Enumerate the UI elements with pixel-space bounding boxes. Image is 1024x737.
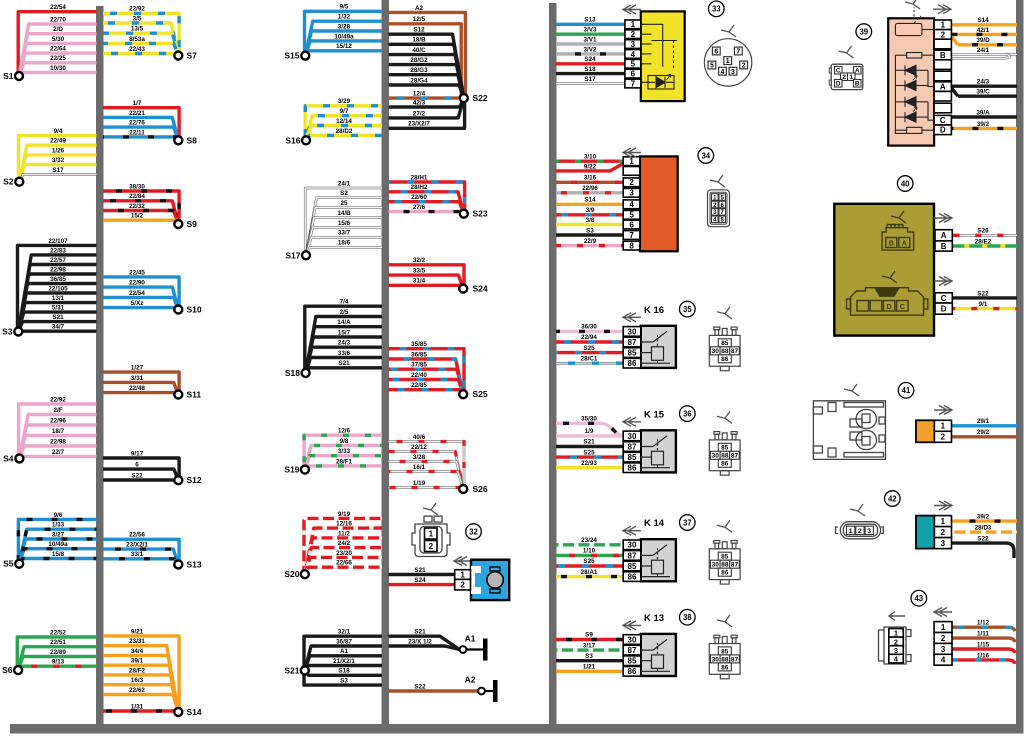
- svg-text:12/14: 12/14: [336, 118, 352, 125]
- svg-text:22/90: 22/90: [129, 280, 145, 287]
- svg-text:S5: S5: [3, 559, 14, 569]
- svg-text:39: 39: [859, 27, 868, 36]
- svg-text:12/16: 12/16: [336, 521, 352, 528]
- svg-text:9/5: 9/5: [340, 4, 349, 11]
- svg-text:18/B: 18/B: [412, 37, 426, 44]
- svg-text:30: 30: [628, 432, 637, 441]
- svg-text:3/17: 3/17: [583, 642, 596, 649]
- svg-text:1: 1: [631, 20, 636, 29]
- svg-text:9/13: 9/13: [52, 659, 65, 666]
- svg-text:31/4: 31/4: [413, 278, 426, 285]
- svg-text:A1: A1: [340, 648, 349, 655]
- svg-text:9/7: 9/7: [340, 108, 349, 115]
- svg-text:3/16: 3/16: [584, 175, 597, 182]
- svg-text:1: 1: [941, 623, 946, 632]
- svg-text:22/51: 22/51: [50, 639, 66, 646]
- svg-text:3: 3: [631, 40, 636, 49]
- svg-text:S11: S11: [187, 390, 202, 400]
- svg-text:30: 30: [712, 656, 720, 663]
- svg-text:S17: S17: [52, 167, 64, 174]
- svg-text:13/5: 13/5: [131, 26, 144, 33]
- svg-text:28/C1: 28/C1: [581, 355, 598, 362]
- svg-text:S10: S10: [187, 305, 202, 315]
- svg-text:88: 88: [721, 656, 729, 663]
- svg-text:3/33: 3/33: [338, 448, 351, 455]
- svg-text:29/1: 29/1: [977, 418, 990, 425]
- svg-text:3: 3: [867, 528, 871, 535]
- svg-text:C: C: [940, 116, 946, 125]
- svg-text:86: 86: [721, 664, 729, 671]
- svg-text:24/3: 24/3: [977, 79, 990, 86]
- svg-text:S16: S16: [285, 135, 300, 145]
- svg-text:2: 2: [429, 542, 434, 551]
- svg-text:34: 34: [701, 151, 710, 160]
- svg-text:1: 1: [726, 58, 730, 65]
- svg-text:7: 7: [736, 49, 740, 56]
- svg-text:S18: S18: [285, 368, 300, 378]
- svg-text:24/1: 24/1: [977, 47, 990, 54]
- svg-text:32/2: 32/2: [413, 257, 426, 264]
- svg-text:36/87: 36/87: [336, 638, 352, 645]
- svg-text:S21: S21: [414, 629, 426, 636]
- svg-text:10/49a: 10/49a: [334, 33, 354, 40]
- svg-text:S13: S13: [187, 559, 202, 569]
- svg-text:B: B: [889, 241, 894, 248]
- svg-text:1/33: 1/33: [52, 522, 65, 529]
- svg-text:28/E2: 28/E2: [975, 238, 992, 245]
- svg-text:35: 35: [683, 305, 692, 314]
- svg-text:32: 32: [469, 527, 478, 536]
- svg-text:1/16: 1/16: [977, 652, 990, 659]
- svg-text:S13: S13: [584, 17, 596, 24]
- svg-text:39/D: 39/D: [976, 37, 990, 44]
- svg-text:30: 30: [628, 327, 637, 336]
- svg-text:5: 5: [631, 60, 636, 69]
- svg-text:9/8: 9/8: [340, 438, 349, 445]
- svg-text:10/30: 10/30: [50, 65, 66, 72]
- svg-text:88: 88: [721, 453, 729, 460]
- svg-text:3: 3: [941, 645, 946, 654]
- svg-text:36/30: 36/30: [581, 324, 597, 331]
- svg-text:4: 4: [894, 657, 898, 664]
- svg-text:1/12: 1/12: [977, 620, 990, 627]
- svg-text:28/A1: 28/A1: [581, 569, 598, 576]
- svg-text:85: 85: [628, 453, 637, 462]
- svg-text:S21: S21: [52, 314, 64, 321]
- svg-text:88: 88: [721, 562, 729, 569]
- svg-text:23/24: 23/24: [581, 537, 597, 544]
- svg-text:28/D3: 28/D3: [975, 525, 992, 532]
- svg-text:25: 25: [340, 200, 348, 207]
- svg-text:30: 30: [628, 541, 637, 550]
- svg-text:5/31: 5/31: [52, 305, 65, 312]
- svg-text:5: 5: [710, 63, 714, 70]
- svg-text:5: 5: [629, 211, 634, 220]
- svg-text:22/105: 22/105: [48, 285, 68, 292]
- svg-text:22/85: 22/85: [411, 382, 427, 389]
- svg-text:2: 2: [842, 74, 846, 81]
- svg-text:22/9: 22/9: [584, 238, 597, 245]
- svg-text:S3: S3: [340, 678, 348, 685]
- svg-text:1/31: 1/31: [131, 703, 144, 710]
- svg-text:3/5: 3/5: [133, 15, 142, 22]
- svg-text:39/A: 39/A: [976, 109, 990, 116]
- svg-text:9/1: 9/1: [979, 301, 988, 308]
- svg-text:33/1: 33/1: [131, 551, 144, 558]
- svg-text:22/89: 22/89: [50, 649, 66, 656]
- svg-text:87: 87: [628, 338, 637, 347]
- svg-text:30: 30: [712, 348, 720, 355]
- svg-text:28/F1: 28/F1: [336, 458, 353, 465]
- svg-text:S7: S7: [187, 51, 198, 61]
- svg-text:3/8: 3/8: [586, 217, 595, 224]
- svg-text:S22: S22: [414, 683, 426, 690]
- svg-text:B: B: [941, 242, 947, 251]
- svg-text:3: 3: [941, 539, 946, 548]
- svg-text:42/1: 42/1: [977, 27, 990, 34]
- svg-text:S17: S17: [584, 76, 596, 83]
- svg-text:40/C: 40/C: [412, 47, 426, 54]
- svg-text:35/30: 35/30: [581, 416, 597, 423]
- svg-text:S22: S22: [977, 290, 989, 297]
- svg-text:S2: S2: [3, 177, 14, 187]
- svg-text:8/53a: 8/53a: [129, 36, 145, 43]
- svg-text:86: 86: [721, 570, 729, 577]
- svg-text:7: 7: [631, 79, 636, 88]
- svg-text:14/B: 14/B: [337, 210, 351, 217]
- svg-text:27/2: 27/2: [413, 110, 426, 117]
- svg-text:S20: S20: [284, 569, 299, 579]
- svg-text:2: 2: [941, 528, 946, 537]
- svg-text:3/28: 3/28: [413, 454, 426, 461]
- svg-text:S21: S21: [338, 360, 350, 367]
- svg-text:S25: S25: [583, 558, 595, 565]
- svg-text:22/66: 22/66: [336, 560, 352, 567]
- svg-text:34/4: 34/4: [131, 648, 144, 655]
- svg-text:41: 41: [902, 386, 911, 395]
- svg-text:86: 86: [628, 667, 637, 676]
- svg-text:S26: S26: [473, 484, 488, 494]
- svg-text:A2: A2: [465, 675, 476, 685]
- svg-text:2/F: 2/F: [53, 407, 62, 414]
- svg-text:18/6: 18/6: [338, 240, 351, 247]
- svg-text:K 13: K 13: [644, 613, 664, 624]
- svg-text:22/96: 22/96: [50, 417, 66, 424]
- svg-text:S17: S17: [285, 250, 300, 260]
- svg-text:37/85: 37/85: [411, 362, 427, 369]
- svg-text:22/92: 22/92: [129, 6, 145, 13]
- svg-text:22/32: 22/32: [129, 203, 145, 210]
- svg-text:2: 2: [631, 30, 636, 39]
- svg-text:1: 1: [941, 21, 946, 30]
- svg-text:D: D: [886, 302, 892, 311]
- svg-text:86: 86: [721, 356, 729, 363]
- svg-text:16/1: 16/1: [413, 464, 426, 471]
- svg-text:86: 86: [628, 573, 637, 582]
- svg-text:3/9: 3/9: [586, 207, 595, 214]
- svg-text:22/62: 22/62: [129, 687, 145, 694]
- svg-text:33/7: 33/7: [338, 230, 351, 237]
- svg-text:23/X2/7: 23/X2/7: [408, 121, 430, 128]
- svg-text:S21: S21: [284, 665, 299, 675]
- svg-text:37: 37: [683, 518, 692, 527]
- svg-text:D: D: [836, 81, 841, 88]
- svg-text:S3: S3: [586, 227, 594, 234]
- svg-text:1/21: 1/21: [583, 664, 596, 671]
- svg-text:7: 7: [629, 231, 634, 240]
- svg-text:3/31: 3/31: [131, 375, 144, 382]
- svg-text:24/3: 24/3: [338, 340, 351, 347]
- svg-text:22/43: 22/43: [129, 46, 145, 53]
- svg-text:K 16: K 16: [644, 305, 664, 316]
- svg-text:S2: S2: [340, 190, 348, 197]
- svg-text:22/96: 22/96: [582, 185, 598, 192]
- svg-text:86: 86: [628, 464, 637, 473]
- svg-text:23/31: 23/31: [129, 638, 145, 645]
- svg-text:2: 2: [460, 581, 465, 590]
- svg-text:29/2: 29/2: [977, 429, 990, 436]
- svg-text:12/6: 12/6: [338, 428, 351, 435]
- svg-text:27/6: 27/6: [413, 204, 426, 211]
- svg-text:86: 86: [628, 359, 637, 368]
- svg-text:87: 87: [628, 442, 637, 451]
- svg-text:2: 2: [941, 634, 946, 643]
- svg-text:A2: A2: [415, 5, 424, 12]
- svg-text:22/48: 22/48: [129, 385, 145, 392]
- svg-text:3/27: 3/27: [52, 531, 65, 538]
- svg-text:3: 3: [629, 189, 634, 198]
- svg-text:85: 85: [721, 554, 729, 561]
- svg-text:34/7: 34/7: [52, 324, 65, 331]
- svg-text:2: 2: [858, 528, 862, 535]
- svg-text:S18: S18: [338, 668, 350, 675]
- svg-text:2/D: 2/D: [53, 26, 63, 33]
- svg-text:S3: S3: [2, 327, 13, 337]
- svg-text:S14: S14: [187, 707, 202, 717]
- svg-text:S4: S4: [3, 453, 14, 463]
- svg-text:C: C: [941, 294, 947, 303]
- svg-text:28/H1: 28/H1: [411, 174, 428, 181]
- svg-text:28/G4: 28/G4: [410, 77, 428, 84]
- svg-text:87: 87: [731, 453, 739, 460]
- svg-text:A1: A1: [465, 634, 476, 644]
- svg-text:S25: S25: [583, 449, 595, 456]
- svg-text:1: 1: [941, 517, 946, 526]
- svg-text:4: 4: [721, 69, 725, 76]
- svg-text:6: 6: [135, 462, 139, 469]
- svg-text:3: 3: [731, 69, 735, 76]
- svg-text:15/8: 15/8: [52, 551, 65, 558]
- svg-text:28/G2: 28/G2: [410, 57, 428, 64]
- svg-text:24/1: 24/1: [338, 180, 351, 187]
- svg-text:7/4: 7/4: [340, 299, 349, 306]
- svg-text:38: 38: [683, 613, 692, 622]
- svg-text:1/27: 1/27: [131, 365, 144, 372]
- svg-text:9/4: 9/4: [54, 128, 63, 135]
- svg-text:5/Xz: 5/Xz: [131, 300, 144, 307]
- svg-text:22/70: 22/70: [50, 16, 66, 23]
- svg-text:2: 2: [941, 30, 946, 39]
- svg-text:87: 87: [628, 646, 637, 655]
- svg-text:12/5: 12/5: [413, 16, 426, 23]
- svg-text:23/X2/1: 23/X2/1: [126, 542, 148, 549]
- svg-text:3/V3: 3/V3: [584, 27, 597, 34]
- svg-text:6: 6: [631, 70, 636, 79]
- svg-text:A: A: [855, 68, 860, 75]
- svg-text:K 15: K 15: [644, 409, 665, 420]
- svg-text:22/94: 22/94: [581, 334, 597, 341]
- svg-text:9/22: 9/22: [584, 163, 597, 170]
- svg-text:18/7: 18/7: [52, 428, 65, 435]
- svg-text:1: 1: [849, 528, 853, 535]
- svg-text:38/30: 38/30: [129, 183, 145, 190]
- svg-text:28/G3: 28/G3: [410, 67, 428, 74]
- svg-text:3/V2: 3/V2: [584, 46, 597, 53]
- svg-text:S22: S22: [977, 536, 989, 543]
- svg-text:1/11: 1/11: [977, 631, 989, 638]
- svg-text:S9: S9: [187, 219, 198, 229]
- svg-text:22/57: 22/57: [50, 257, 66, 264]
- svg-text:23/X 1/2: 23/X 1/2: [408, 638, 432, 645]
- svg-text:87: 87: [628, 551, 637, 560]
- svg-text:S12: S12: [187, 475, 202, 485]
- svg-text:S22: S22: [473, 93, 488, 103]
- svg-text:33: 33: [712, 5, 721, 14]
- svg-text:S12: S12: [413, 27, 425, 34]
- svg-text:22/11: 22/11: [129, 129, 145, 136]
- svg-text:4: 4: [631, 50, 636, 59]
- svg-text:43: 43: [914, 594, 923, 603]
- svg-text:1/19: 1/19: [413, 480, 426, 487]
- svg-text:85: 85: [721, 648, 729, 655]
- svg-text:3/32: 3/32: [52, 157, 65, 164]
- svg-text:A: A: [940, 83, 946, 92]
- svg-text:8: 8: [629, 242, 634, 251]
- svg-text:2: 2: [941, 433, 946, 442]
- svg-text:4: 4: [629, 200, 634, 209]
- svg-text:2/5: 2/5: [340, 309, 349, 316]
- svg-text:6: 6: [714, 49, 718, 56]
- svg-text:22/76: 22/76: [129, 120, 145, 127]
- svg-text:S22: S22: [131, 472, 143, 479]
- svg-text:S8: S8: [187, 135, 198, 145]
- svg-text:3/29: 3/29: [338, 98, 351, 105]
- svg-text:D: D: [941, 305, 947, 314]
- svg-text:87: 87: [731, 656, 739, 663]
- svg-text:B: B: [855, 81, 860, 88]
- svg-text:22/93: 22/93: [581, 460, 597, 467]
- svg-text:1: 1: [849, 74, 853, 81]
- svg-text:22/45: 22/45: [129, 269, 145, 276]
- svg-text:28/F2: 28/F2: [129, 667, 146, 674]
- svg-text:22/21: 22/21: [129, 110, 145, 117]
- svg-text:32/1: 32/1: [338, 629, 351, 636]
- svg-text:22/7: 22/7: [52, 449, 65, 456]
- svg-text:S21: S21: [414, 567, 426, 574]
- svg-text:15/6: 15/6: [338, 220, 351, 227]
- svg-text:A: A: [941, 231, 947, 240]
- svg-text:C: C: [900, 302, 906, 311]
- svg-text:28/H2: 28/H2: [411, 184, 428, 191]
- svg-text:S24: S24: [414, 577, 426, 584]
- svg-text:30: 30: [628, 635, 637, 644]
- svg-text:22/52: 22/52: [50, 629, 66, 636]
- svg-text:22/84: 22/84: [129, 193, 145, 200]
- svg-text:22/40: 22/40: [411, 372, 427, 379]
- svg-text:87: 87: [731, 348, 739, 355]
- svg-text:36/85: 36/85: [50, 276, 66, 283]
- svg-text:86: 86: [721, 461, 729, 468]
- svg-text:10/49a: 10/49a: [48, 541, 68, 548]
- svg-text:85: 85: [628, 349, 637, 358]
- svg-text:22/25: 22/25: [50, 55, 66, 62]
- svg-text:87: 87: [731, 562, 739, 569]
- svg-text:S6: S6: [2, 665, 13, 675]
- svg-text:S21: S21: [583, 439, 595, 446]
- svg-text:1/32: 1/32: [338, 14, 351, 21]
- svg-text:9/21: 9/21: [131, 628, 144, 635]
- svg-text:16/3: 16/3: [131, 677, 144, 684]
- svg-text:1/26: 1/26: [52, 147, 65, 154]
- svg-text:1: 1: [460, 571, 465, 580]
- svg-text:2: 2: [742, 63, 746, 70]
- svg-text:S1: S1: [3, 71, 14, 81]
- svg-text:85: 85: [628, 562, 637, 571]
- svg-text:23/20: 23/20: [336, 550, 352, 557]
- svg-text:88: 88: [721, 348, 729, 355]
- svg-text:S14: S14: [977, 17, 989, 24]
- svg-text:B: B: [940, 51, 946, 60]
- svg-text:30: 30: [712, 453, 720, 460]
- svg-text:S26: S26: [977, 228, 989, 235]
- svg-text:9/17: 9/17: [131, 450, 144, 457]
- svg-text:40/6: 40/6: [413, 434, 426, 441]
- svg-text:S14: S14: [584, 197, 596, 204]
- svg-text:A: A: [902, 241, 907, 248]
- svg-text:S15: S15: [284, 51, 299, 61]
- svg-text:5/30: 5/30: [52, 36, 65, 43]
- svg-text:S19: S19: [284, 465, 299, 475]
- svg-text:9/6: 9/6: [54, 512, 63, 519]
- svg-text:39/2: 39/2: [977, 121, 990, 128]
- svg-text:9/19: 9/19: [338, 511, 351, 518]
- svg-text:K 14: K 14: [644, 518, 665, 529]
- svg-text:30: 30: [712, 562, 720, 569]
- svg-text:22/54: 22/54: [50, 4, 66, 11]
- svg-text:28/D2: 28/D2: [336, 128, 353, 135]
- svg-text:3/V1: 3/V1: [584, 36, 597, 43]
- svg-text:22/64: 22/64: [50, 46, 66, 53]
- svg-text:22/92: 22/92: [50, 396, 66, 403]
- svg-text:39/C: 39/C: [976, 89, 990, 96]
- svg-text:S3: S3: [585, 653, 593, 660]
- svg-text:40: 40: [901, 179, 910, 188]
- svg-text:36/85: 36/85: [411, 351, 427, 358]
- svg-text:S25: S25: [473, 389, 488, 399]
- svg-text:85: 85: [721, 445, 729, 452]
- svg-text:22/107: 22/107: [48, 238, 68, 245]
- svg-text:D: D: [940, 126, 946, 135]
- svg-text:15/7: 15/7: [338, 329, 351, 336]
- svg-text:22/98: 22/98: [50, 266, 66, 273]
- svg-text:3/10: 3/10: [584, 154, 597, 161]
- svg-text:6: 6: [629, 220, 634, 229]
- svg-text:39/1: 39/1: [131, 658, 144, 665]
- svg-text:4: 4: [941, 656, 946, 665]
- svg-text:12/4: 12/4: [413, 91, 426, 98]
- svg-text:1/7: 1/7: [133, 100, 142, 107]
- svg-text:1: 1: [629, 157, 634, 166]
